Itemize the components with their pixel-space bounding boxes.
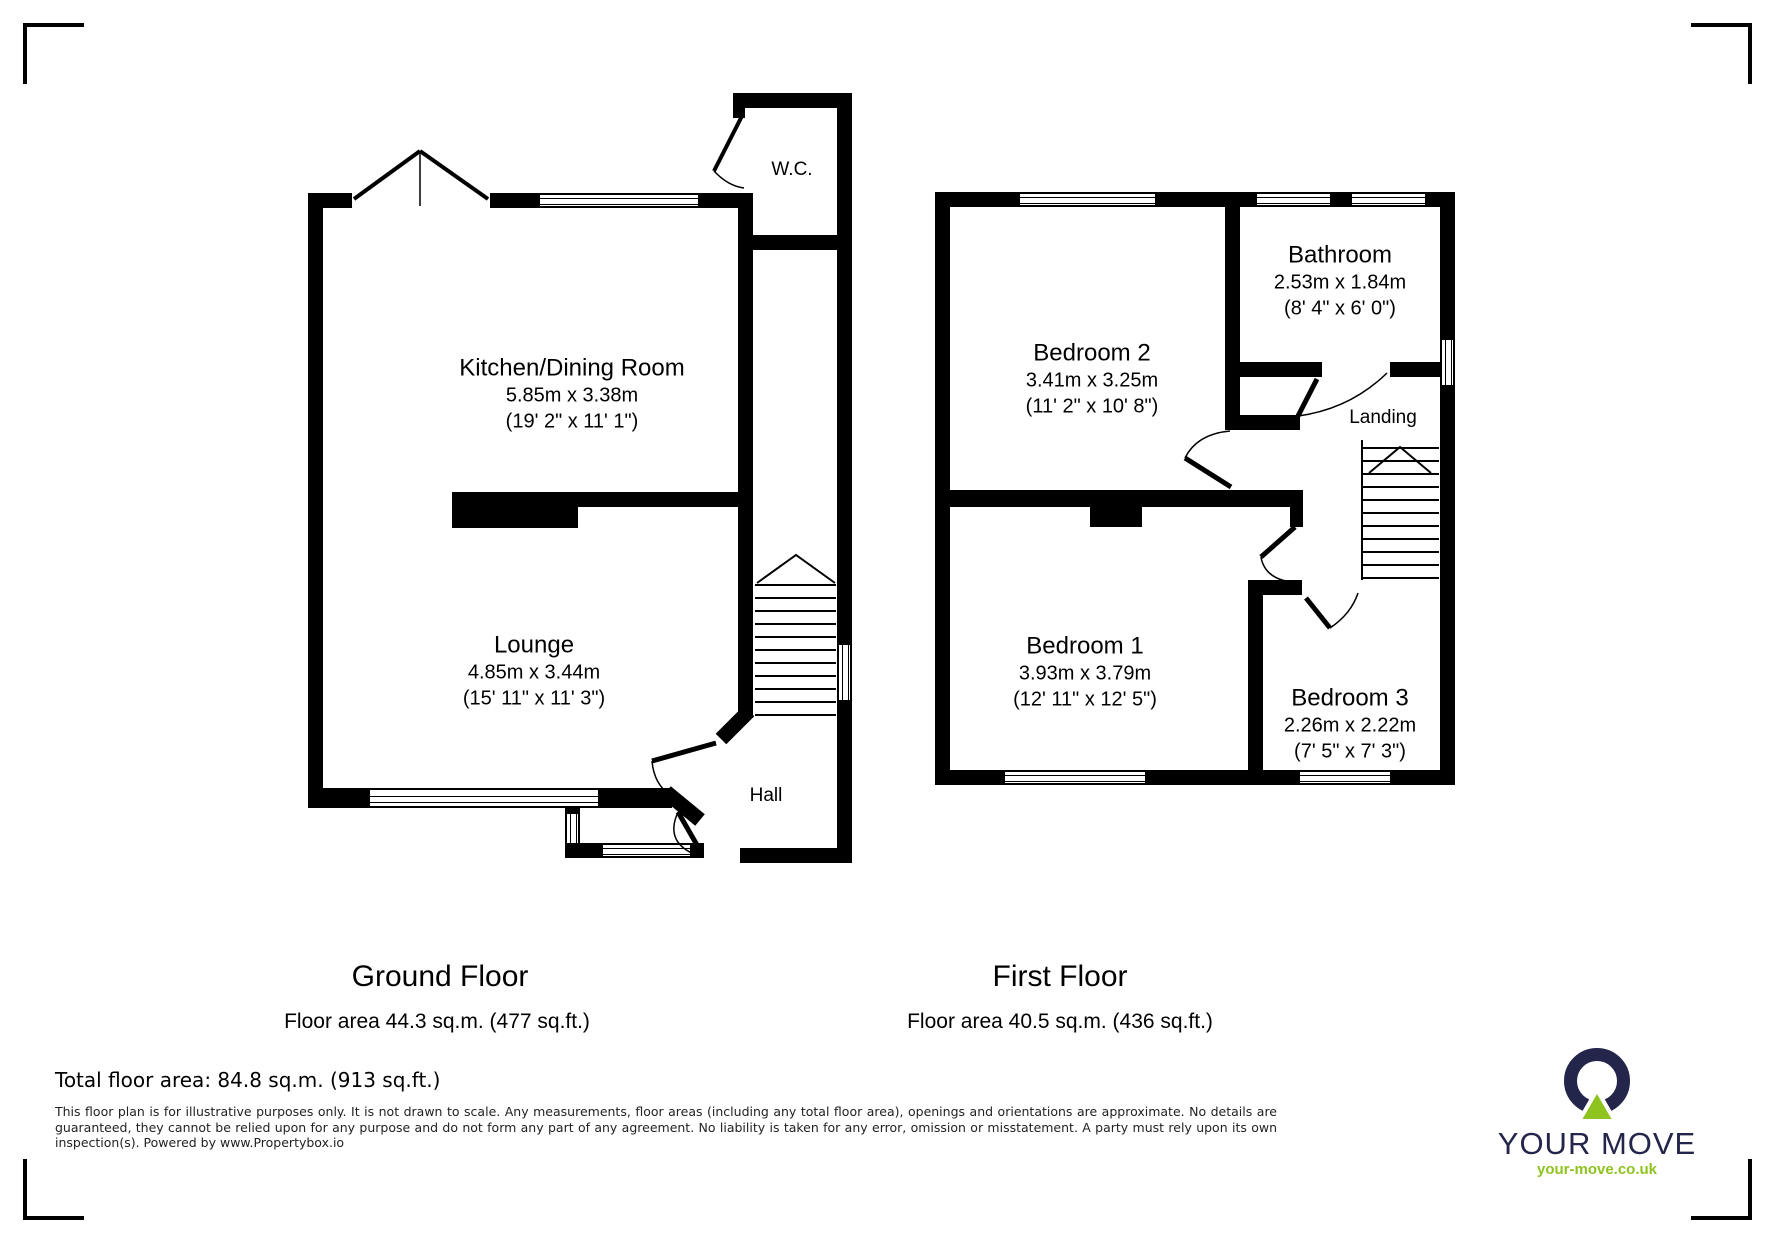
wall <box>1225 207 1240 430</box>
floorplan-canvas: Kitchen/Dining Room 5.85m x 3.38m (19' 2… <box>0 0 1771 1239</box>
disclaimer-text: This floor plan is for illustrative purp… <box>55 1104 1277 1151</box>
wall <box>308 788 370 808</box>
wall <box>1155 192 1257 207</box>
wall <box>935 770 1005 785</box>
window <box>540 193 698 208</box>
wall <box>308 193 352 208</box>
wall-divider-block <box>1090 490 1142 527</box>
wall <box>1248 580 1263 770</box>
room-label-kitchen: Kitchen/Dining Room 5.85m x 3.38m (19' 2… <box>459 354 684 435</box>
wall <box>690 843 704 858</box>
wall-landing-stub <box>1240 415 1300 430</box>
corner-mark-top-right <box>1691 23 1752 84</box>
room-dim-metric: 2.53m x 1.84m <box>1274 270 1406 296</box>
room-name: Bedroom 2 <box>1026 339 1159 368</box>
wall-bathroom-bottom <box>1240 362 1322 377</box>
room-name: Bedroom 1 <box>1013 632 1157 661</box>
first-floor-title: First Floor <box>993 960 1128 994</box>
room-label-bedroom2: Bedroom 2 3.41m x 3.25m (11' 2" x 10' 8"… <box>1026 339 1159 420</box>
wall <box>1145 770 1300 785</box>
window <box>1352 192 1425 207</box>
wall <box>837 700 852 863</box>
wall <box>740 848 852 863</box>
wall <box>738 208 753 718</box>
room-dim-imperial: (7' 5" x 7' 3") <box>1284 739 1416 765</box>
wall-bedroom3-top <box>1248 580 1302 595</box>
corner-mark-top-left <box>23 23 84 84</box>
room-label-landing: Landing <box>1349 407 1417 429</box>
room-name: Bedroom 3 <box>1284 684 1416 713</box>
bedroom2-door <box>1185 431 1231 487</box>
ground-floor-area: Floor area 44.3 sq.m. (477 sq.ft.) <box>284 1010 590 1034</box>
room-name: Landing <box>1349 407 1417 428</box>
wall <box>1290 490 1303 527</box>
room-dim-metric: 2.26m x 2.22m <box>1284 713 1416 739</box>
wall <box>837 93 852 645</box>
wall <box>565 843 603 858</box>
bedroom3-door <box>1306 593 1358 628</box>
wall <box>733 108 745 118</box>
window <box>1257 192 1330 207</box>
wall <box>698 193 753 208</box>
window <box>837 645 852 700</box>
ground-stairs <box>755 555 836 715</box>
window <box>1005 770 1145 785</box>
wall <box>1390 362 1440 377</box>
room-name: W.C. <box>771 159 812 180</box>
wall <box>935 192 1020 207</box>
wall <box>565 806 580 814</box>
wall <box>1440 385 1455 785</box>
wall-wc-top <box>733 93 852 108</box>
window <box>1020 192 1155 207</box>
window <box>1440 340 1455 385</box>
window <box>370 788 598 808</box>
room-name: Hall <box>750 785 783 806</box>
bedroom1-door <box>1261 527 1299 583</box>
room-label-lounge: Lounge 4.85m x 3.44m (15' 11" x 11' 3") <box>463 631 605 712</box>
logo-brand-text: YOUR MOVE <box>1497 1127 1697 1161</box>
wall <box>1330 192 1352 207</box>
room-dim-imperial: (8' 4" x 6' 0") <box>1274 296 1406 322</box>
room-label-wc: W.C. <box>771 159 812 181</box>
room-dim-imperial: (12' 11" x 12' 5") <box>1013 687 1157 713</box>
room-dim-imperial: (15' 11" x 11' 3") <box>463 686 605 712</box>
wall <box>308 193 323 808</box>
total-floor-area: Total floor area: 84.8 sq.m. (913 sq.ft.… <box>55 1068 440 1092</box>
wc-door <box>714 114 744 188</box>
wall <box>1390 770 1455 785</box>
wall-divider-block <box>452 492 578 528</box>
room-label-bedroom1: Bedroom 1 3.93m x 3.79m (12' 11" x 12' 5… <box>1013 632 1157 713</box>
corner-mark-bottom-left <box>23 1159 84 1220</box>
your-move-logo: YOUR MOVE your-move.co.uk <box>1497 1048 1697 1179</box>
room-dim-imperial: (11' 2" x 10' 8") <box>1026 394 1159 420</box>
room-name: Lounge <box>463 631 605 660</box>
room-label-bedroom3: Bedroom 3 2.26m x 2.22m (7' 5" x 7' 3") <box>1284 684 1416 765</box>
wall <box>490 193 540 208</box>
room-dim-metric: 3.41m x 3.25m <box>1026 368 1159 394</box>
french-door <box>354 151 488 206</box>
room-dim-metric: 5.85m x 3.38m <box>459 383 684 409</box>
window <box>565 814 580 844</box>
first-floor-stairs <box>1362 440 1439 580</box>
wall-wc-bottom <box>747 235 837 250</box>
room-name: Kitchen/Dining Room <box>459 354 684 383</box>
first-floor-area: Floor area 40.5 sq.m. (436 sq.ft.) <box>907 1010 1213 1034</box>
room-label-bathroom: Bathroom 2.53m x 1.84m (8' 4" x 6' 0") <box>1274 241 1406 322</box>
wall <box>1440 192 1455 340</box>
your-move-logo-mark <box>1562 1048 1632 1122</box>
wall <box>598 788 672 808</box>
corner-mark-bottom-right <box>1691 1159 1752 1220</box>
room-dim-metric: 4.85m x 3.44m <box>463 660 605 686</box>
wall <box>935 192 950 785</box>
logo-url-text: your-move.co.uk <box>1497 1161 1697 1179</box>
room-name: Bathroom <box>1274 241 1406 270</box>
wall <box>578 492 753 507</box>
window <box>1300 770 1390 785</box>
ground-floor-title: Ground Floor <box>352 960 529 994</box>
window <box>603 843 690 858</box>
room-dim-metric: 3.93m x 3.79m <box>1013 661 1157 687</box>
room-dim-imperial: (19' 2" x 11' 1") <box>459 409 684 435</box>
room-label-hall: Hall <box>750 785 783 807</box>
